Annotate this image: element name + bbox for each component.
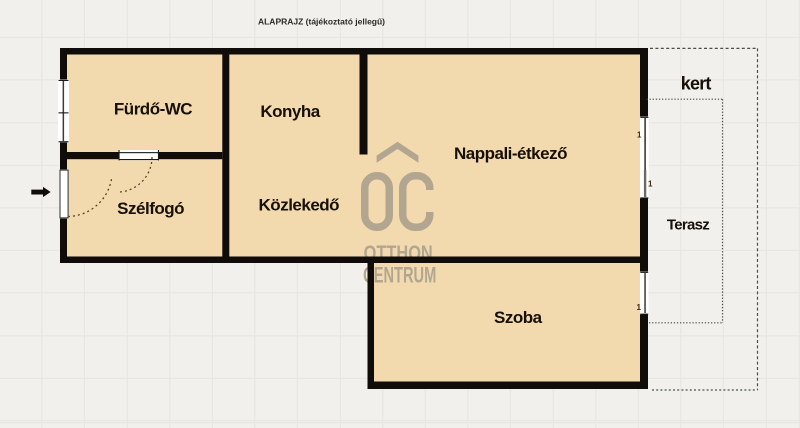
svg-text:Fürdő-WC: Fürdő-WC bbox=[114, 100, 192, 119]
svg-text:kert: kert bbox=[681, 74, 712, 94]
svg-text:Szoba: Szoba bbox=[494, 308, 543, 327]
svg-text:1: 1 bbox=[637, 131, 642, 140]
svg-text:1: 1 bbox=[648, 180, 653, 189]
svg-text:Konyha: Konyha bbox=[260, 102, 320, 121]
svg-text:Nappali-étkező: Nappali-étkező bbox=[454, 144, 567, 163]
svg-text:Szélfogó: Szélfogó bbox=[117, 199, 184, 218]
svg-text:Közlekedő: Közlekedő bbox=[259, 196, 340, 215]
svg-text:1: 1 bbox=[637, 303, 642, 312]
svg-text:Terasz: Terasz bbox=[667, 217, 709, 234]
svg-text:ALAPRAJZ (tájékoztató jellegű): ALAPRAJZ (tájékoztató jellegű) bbox=[258, 17, 385, 27]
svg-text:CENTRUM: CENTRUM bbox=[363, 264, 436, 289]
